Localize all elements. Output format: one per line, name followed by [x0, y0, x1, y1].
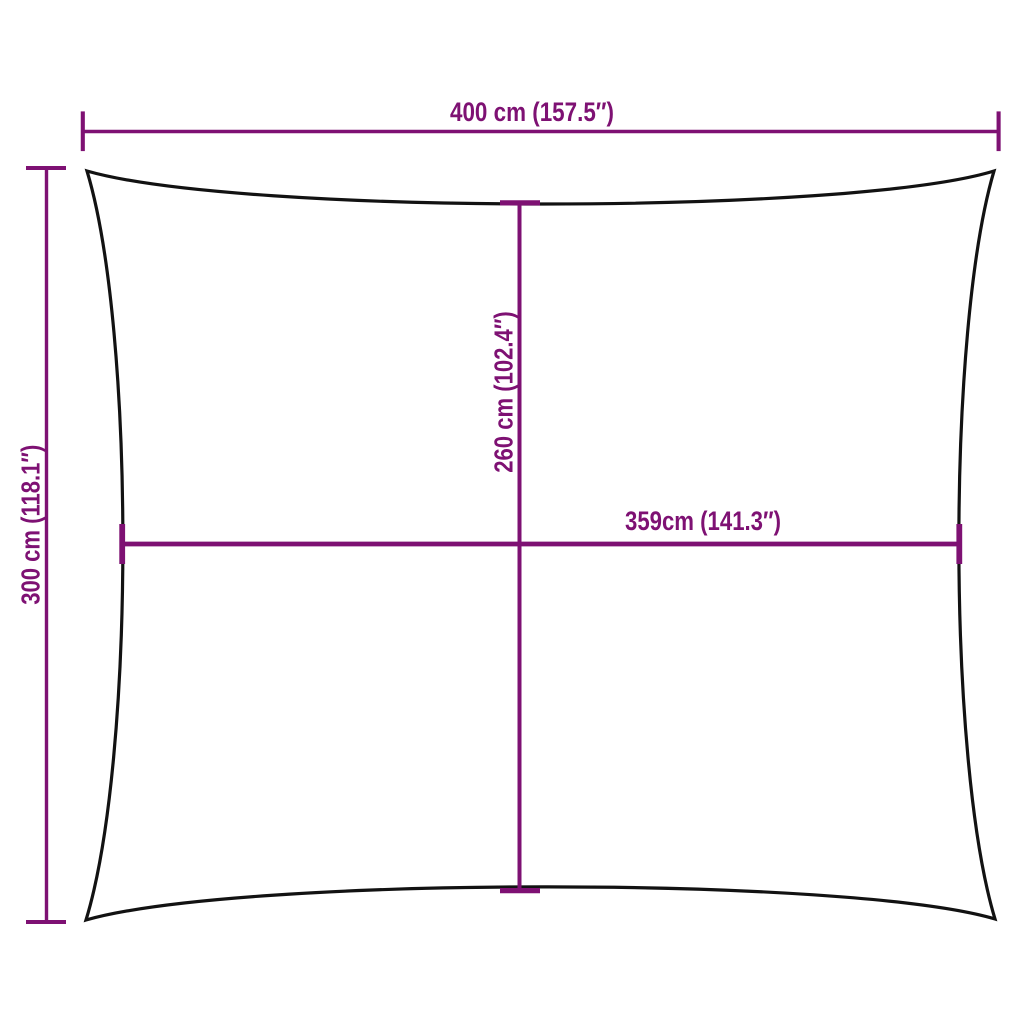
svg-text:300 cm (118.1″): 300 cm (118.1″) [17, 445, 45, 605]
svg-text:260 cm (102.4″): 260 cm (102.4″) [491, 311, 519, 473]
svg-text:400 cm (157.5″): 400 cm (157.5″) [450, 97, 614, 127]
svg-text:359cm (141.3″): 359cm (141.3″) [625, 506, 781, 536]
